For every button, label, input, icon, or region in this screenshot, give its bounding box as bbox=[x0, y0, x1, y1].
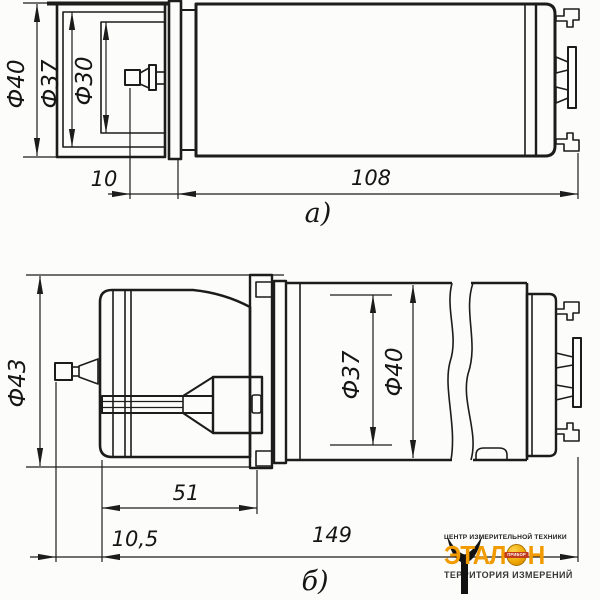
drawing-svg: Ф40 Ф37 Ф30 10 108 а) bbox=[0, 0, 600, 600]
figB-bottom-boss bbox=[476, 448, 507, 460]
figA-contact-pin bbox=[125, 65, 165, 90]
figA-rear-latch bbox=[556, 9, 579, 151]
figB-break-line-2 bbox=[466, 283, 473, 460]
etalon-logo: ЦЕНТР ИЗМЕРИТЕЛЬНОЙ ТЕХНИКИ ЭТАЛ ПРИБОР … bbox=[444, 534, 573, 580]
figB-dim-len51: 51 bbox=[173, 481, 200, 505]
figure-b-drawing bbox=[55, 275, 581, 468]
figA-dim-len10: 10 bbox=[91, 167, 118, 191]
figA-flange-ring bbox=[169, 1, 181, 159]
figA-dim-dia37: Ф37 bbox=[38, 59, 64, 108]
figB-dim-len149: 149 bbox=[312, 523, 352, 547]
figB-dim-dia43: Ф43 bbox=[5, 358, 31, 407]
figure-b-label: б) bbox=[301, 566, 328, 597]
logo-brand-right: Н bbox=[528, 542, 545, 568]
globe-banner-label: ПРИБОР bbox=[505, 552, 529, 559]
figB-nose-pin bbox=[55, 359, 98, 384]
figB-flange-plate-1 bbox=[250, 275, 272, 468]
technical-drawing-page: Ф40 Ф37 Ф30 10 108 а) bbox=[0, 0, 600, 600]
figA-dim-dia40: Ф40 bbox=[4, 59, 30, 108]
figure-a-drawing bbox=[47, 1, 579, 159]
figB-flange-plate-2 bbox=[274, 281, 286, 463]
figA-dim-len108: 108 bbox=[351, 166, 391, 190]
figA-dim-dia30: Ф30 bbox=[72, 56, 98, 105]
figB-clamp-rod bbox=[102, 377, 262, 433]
logo-brand-left: ЭТАЛ bbox=[444, 542, 505, 568]
logo-brand: ЭТАЛ ПРИБОР Н bbox=[444, 541, 564, 568]
figB-dim-dia37: Ф37 bbox=[339, 350, 365, 399]
figA-main-cylinder bbox=[196, 4, 555, 156]
figB-dim-len10-5: 10,5 bbox=[112, 527, 159, 551]
figB-flange-tab-top bbox=[256, 282, 272, 297]
figB-flange-tab-bottom bbox=[256, 451, 272, 466]
figure-a-dimensions: Ф40 Ф37 Ф30 10 108 а) bbox=[4, 3, 578, 229]
globe-icon: ПРИБОР bbox=[506, 544, 526, 566]
figure-a-label: а) bbox=[305, 198, 332, 229]
figB-break-line-1 bbox=[448, 283, 453, 460]
figB-dim-dia40: Ф40 bbox=[382, 347, 408, 396]
figB-rear-latch bbox=[556, 302, 581, 441]
